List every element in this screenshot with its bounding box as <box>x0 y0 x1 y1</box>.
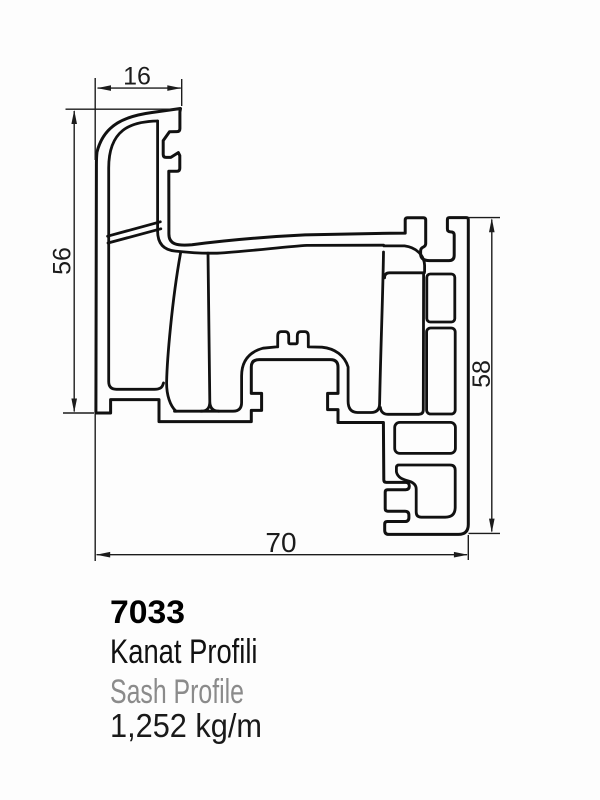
svg-text:1,252 kg/m: 1,252 kg/m <box>110 707 262 744</box>
svg-text:Kanat Profili: Kanat Profili <box>110 633 258 671</box>
svg-text:56: 56 <box>49 247 77 275</box>
svg-text:58: 58 <box>468 360 496 388</box>
svg-text:7033: 7033 <box>110 594 185 630</box>
svg-text:Sash Profile: Sash Profile <box>110 673 244 711</box>
svg-text:70: 70 <box>265 527 296 558</box>
svg-text:16: 16 <box>123 63 151 91</box>
